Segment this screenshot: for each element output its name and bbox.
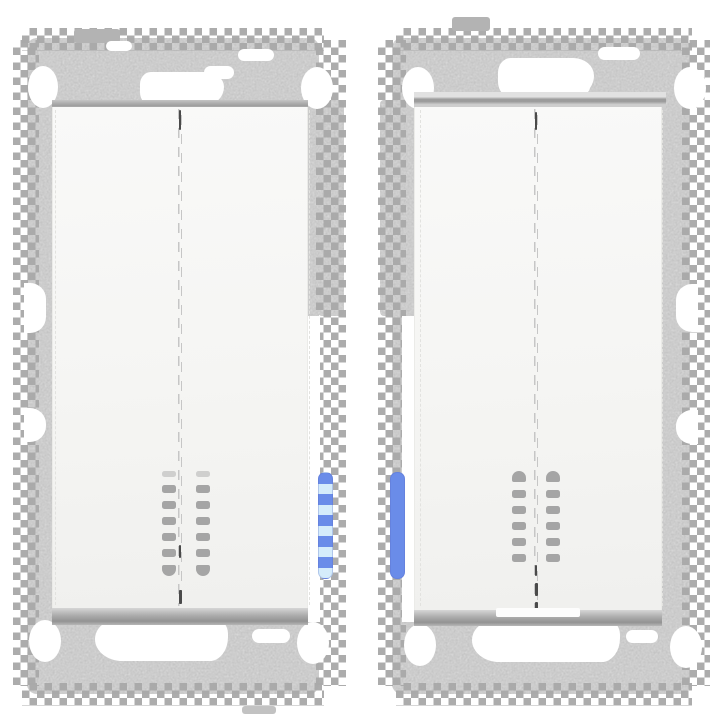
serrated-edge-left bbox=[13, 40, 39, 686]
screw-slot-cutout-bottom bbox=[95, 619, 228, 661]
indicator-slot bbox=[162, 533, 176, 541]
indicator-slot bbox=[196, 471, 210, 477]
screw-slot-cutout-top-small bbox=[204, 66, 234, 79]
plate-notch-left-upper bbox=[24, 283, 46, 333]
seam-dash-lower bbox=[179, 545, 181, 558]
serrated-edge-right bbox=[316, 40, 346, 686]
bottom-edge-highlight bbox=[496, 608, 580, 617]
plate-notch-right-upper bbox=[676, 284, 698, 332]
indicator-slot bbox=[512, 490, 526, 498]
seam-dash-lower bbox=[535, 565, 537, 576]
serrated-edge-right bbox=[682, 40, 710, 686]
indicator-slot bbox=[162, 549, 176, 557]
indicator-slot bbox=[162, 485, 176, 493]
claw-screw-hole-bottom-left bbox=[404, 624, 436, 666]
seam-dash-mid-bottom bbox=[535, 583, 538, 596]
indicator-slot bbox=[162, 517, 176, 525]
screw-slot-cutout-top-small bbox=[560, 74, 590, 94]
indicator-window-column bbox=[546, 471, 560, 562]
plate-notch-right-lower bbox=[676, 410, 698, 444]
indicator-slot bbox=[196, 485, 210, 493]
serrated-edge-bottom bbox=[396, 683, 692, 706]
led-indicator-strip bbox=[318, 472, 333, 579]
plate-slit-top-left bbox=[106, 41, 132, 51]
indicator-slot bbox=[512, 522, 526, 530]
claw-screw-hole-top-right bbox=[674, 67, 706, 109]
indicator-slot bbox=[546, 506, 560, 514]
led-indicator-strip bbox=[390, 472, 405, 579]
screw-slot-cutout-bottom bbox=[472, 620, 620, 662]
indicator-slot bbox=[196, 533, 210, 541]
seam-dash-bottom bbox=[179, 590, 182, 604]
indicator-slot bbox=[162, 565, 176, 576]
rocker-bottom-edge bbox=[52, 608, 308, 625]
indicator-slot bbox=[196, 549, 210, 557]
plate-slit-bottom-right bbox=[626, 630, 658, 643]
plate-slit-bottom-right bbox=[252, 629, 290, 643]
indicator-slot bbox=[512, 506, 526, 514]
indicator-window-column bbox=[512, 471, 526, 562]
indicator-slot bbox=[546, 471, 560, 482]
claw-screw-hole-bottom-left bbox=[29, 620, 61, 662]
serrated-edge-bottom bbox=[22, 683, 324, 706]
indicator-slot bbox=[546, 538, 560, 546]
claw-screw-hole-bottom-right bbox=[297, 622, 329, 664]
indicator-slot bbox=[546, 490, 560, 498]
indicator-slot bbox=[162, 501, 176, 509]
serrated-edge-top bbox=[22, 28, 324, 51]
indicator-slot bbox=[512, 554, 526, 562]
seam-dash-top bbox=[179, 110, 181, 130]
indicator-window-column bbox=[162, 471, 176, 576]
indicator-slot bbox=[546, 554, 560, 562]
plate-tab-top bbox=[452, 17, 490, 31]
cover-frame-outline bbox=[55, 110, 310, 605]
indicator-slot bbox=[196, 501, 210, 509]
plate-slit-top-right bbox=[598, 47, 640, 60]
indicator-slot bbox=[546, 522, 560, 530]
indicator-slot bbox=[196, 565, 210, 576]
cover-frame-outline bbox=[420, 110, 663, 606]
rocker-seam bbox=[178, 109, 182, 606]
indicator-window-column bbox=[196, 471, 210, 576]
serrated-edge-top bbox=[396, 28, 692, 51]
indicator-slot bbox=[512, 471, 526, 482]
rocker-top-edge bbox=[414, 92, 666, 108]
claw-screw-hole-bottom-right bbox=[670, 626, 702, 668]
indicator-slot bbox=[512, 538, 526, 546]
rocker-seam bbox=[534, 109, 538, 608]
plate-tab-bottom bbox=[242, 706, 276, 714]
product-photo: Two flush-mount double rocker switch ins… bbox=[0, 0, 720, 720]
indicator-slot bbox=[162, 471, 176, 477]
plate-slit-top-right bbox=[238, 49, 274, 61]
seam-dash-top bbox=[535, 112, 537, 130]
indicator-slot bbox=[196, 517, 210, 525]
